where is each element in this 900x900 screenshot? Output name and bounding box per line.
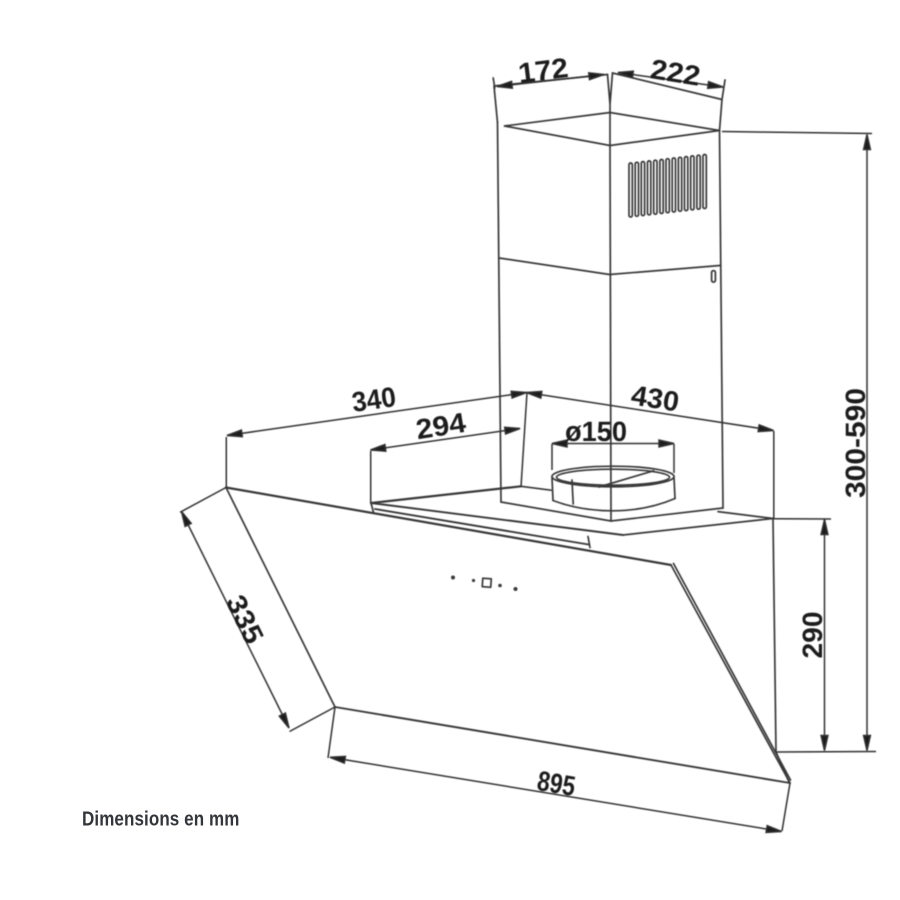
svg-text:294: 294 [414, 407, 469, 446]
svg-text:222: 222 [648, 53, 702, 91]
svg-text:430: 430 [629, 379, 681, 417]
svg-text:300-590: 300-590 [840, 388, 871, 498]
svg-text:ø150: ø150 [565, 416, 627, 447]
svg-text:895: 895 [535, 765, 578, 802]
svg-text:340: 340 [350, 381, 398, 418]
svg-text:172: 172 [516, 52, 569, 89]
svg-text:290: 290 [797, 612, 828, 659]
svg-text:335: 335 [220, 590, 270, 649]
